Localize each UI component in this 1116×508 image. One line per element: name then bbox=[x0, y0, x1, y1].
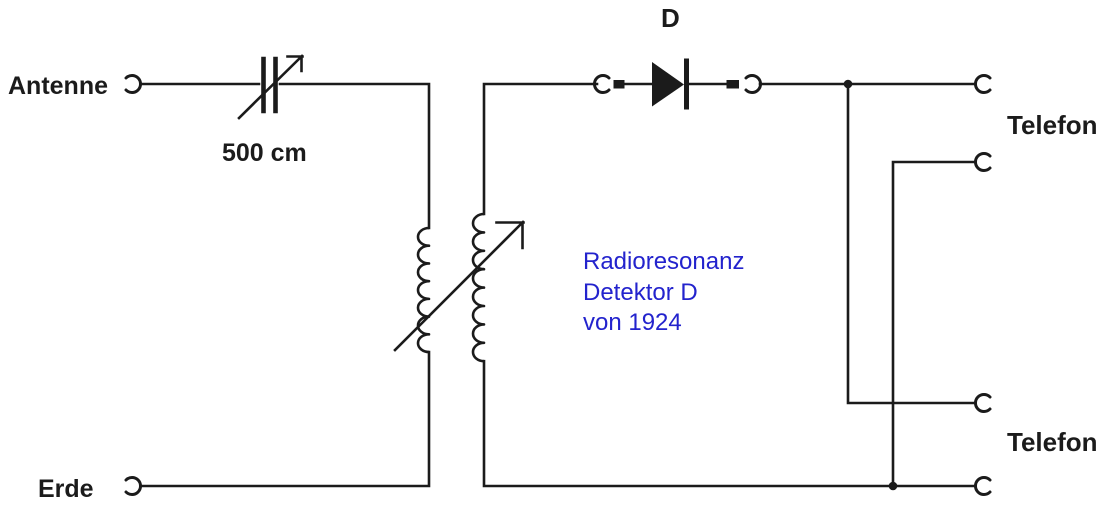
annotation-line-3: von 1924 bbox=[583, 309, 682, 336]
transformer-arrow-icon bbox=[395, 222, 524, 350]
secondary-bottom-wire bbox=[484, 361, 975, 486]
diode-triangle-icon bbox=[652, 62, 684, 107]
antenna-terminal-icon bbox=[126, 75, 141, 92]
telefon-bottom-label: Telefon bbox=[1007, 427, 1098, 457]
telefon-terminal-4-icon bbox=[975, 478, 990, 495]
capacitor-value-label: 500 cm bbox=[222, 139, 307, 167]
phone-branch-wire bbox=[848, 84, 975, 403]
circuit-schematic: Antenne 500 cm D Telefon Telefon Erde Ra… bbox=[0, 0, 1116, 508]
telefon-top-label: Telefon bbox=[1007, 110, 1098, 140]
earth-terminal-icon bbox=[126, 478, 141, 495]
schematic-canvas: Antenne 500 cm D Telefon Telefon Erde Ra… bbox=[0, 0, 1116, 508]
phone-return-wire bbox=[893, 162, 975, 486]
detector-socket-right-icon bbox=[746, 75, 761, 92]
detector-pin-left-icon bbox=[614, 80, 625, 89]
telefon-terminal-2-icon bbox=[975, 154, 990, 171]
primary-coil-icon bbox=[418, 228, 429, 352]
erde-label: Erde bbox=[38, 475, 94, 503]
earth-wire bbox=[141, 352, 430, 486]
junction-dot-bottom bbox=[889, 482, 898, 491]
antenne-label: Antenne bbox=[8, 72, 108, 100]
detector-pin-right-icon bbox=[727, 80, 740, 89]
annotation-line-1: Radioresonanz bbox=[583, 248, 744, 275]
telefon-terminal-1-icon bbox=[975, 76, 990, 93]
detector-label: D bbox=[661, 3, 680, 33]
secondary-coil-icon bbox=[473, 214, 484, 361]
annotation-line-2: Detektor D bbox=[583, 279, 698, 306]
capacitor-arrow-icon bbox=[239, 56, 303, 118]
secondary-top-wire bbox=[484, 84, 597, 214]
telefon-terminal-3-icon bbox=[975, 395, 990, 412]
